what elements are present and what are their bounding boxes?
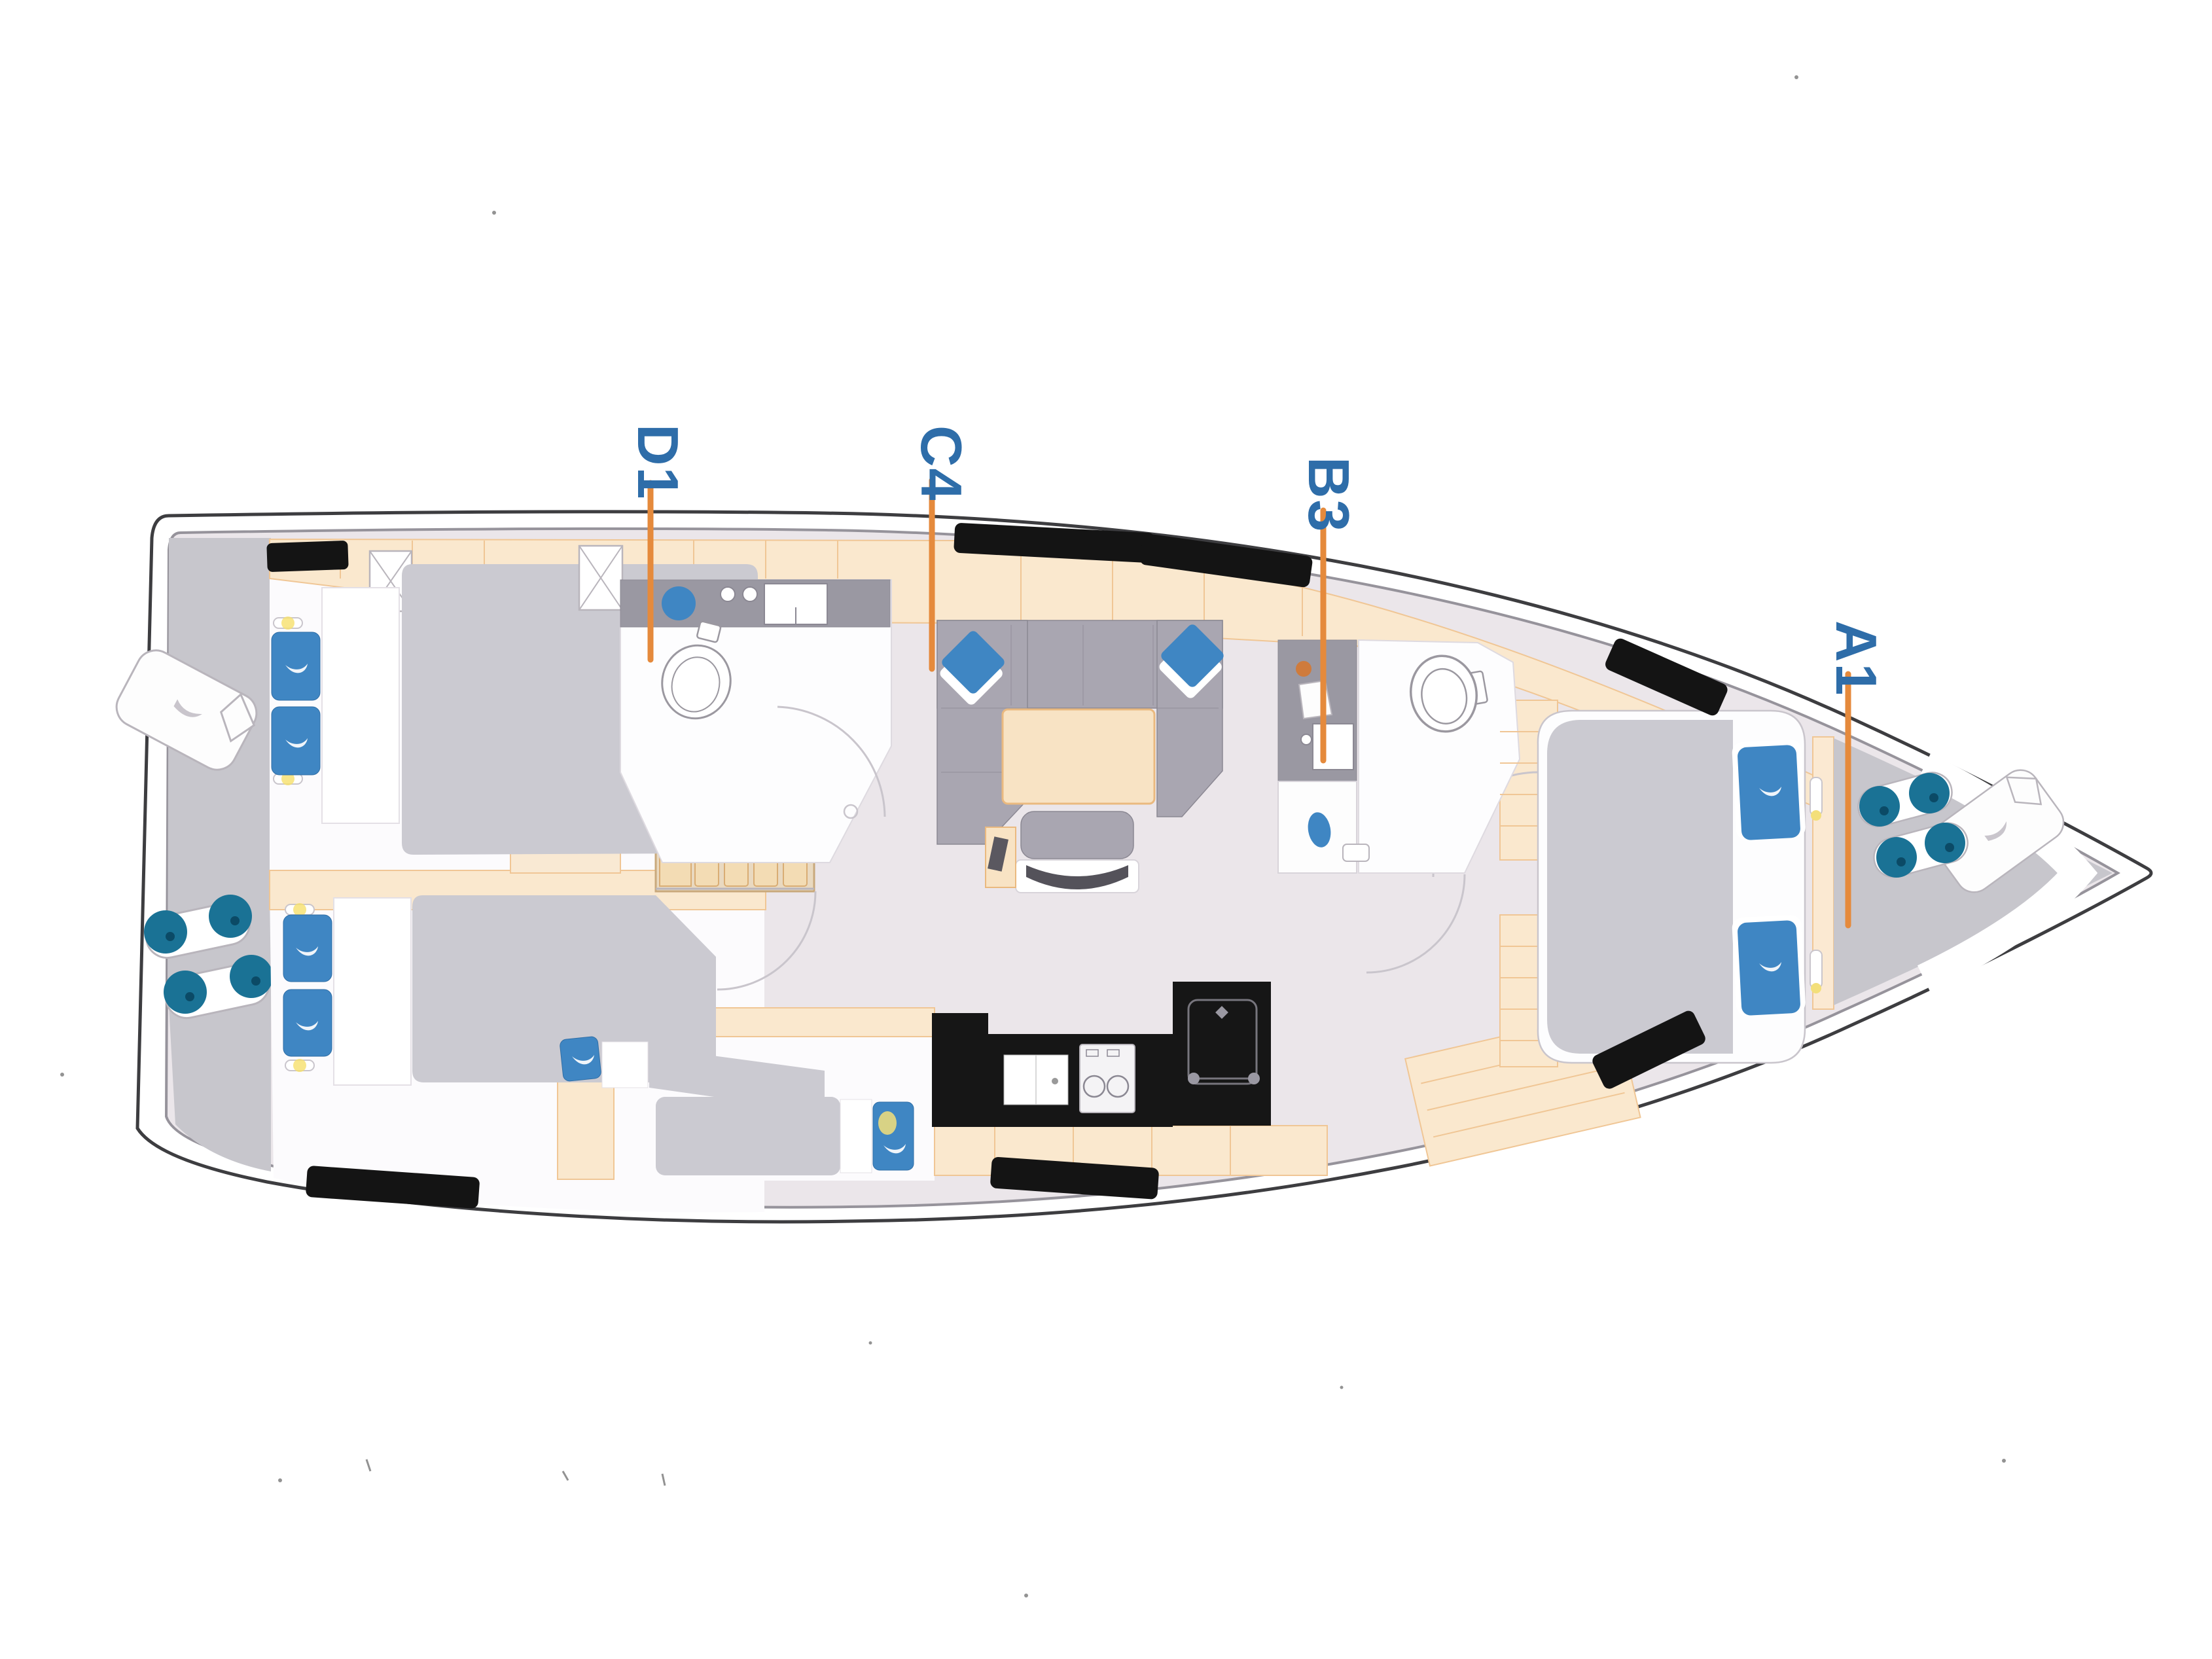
cabin-label-b3: B3 (1296, 457, 1361, 533)
towel-icon (1299, 681, 1332, 719)
stern-deck (110, 538, 274, 1171)
faucet-icon (743, 587, 757, 601)
salon-bench (1021, 812, 1133, 859)
window-slot (266, 541, 348, 572)
salon-table (1003, 709, 1154, 804)
bow-deck (1834, 738, 2113, 1005)
mattress (1547, 720, 1733, 1054)
pillow (1732, 739, 1806, 840)
bed-sheet (334, 898, 411, 1085)
pillow (1732, 914, 1806, 1016)
pillow (283, 990, 332, 1056)
pillow (272, 707, 320, 775)
cabin-label-c4: C4 (909, 425, 974, 502)
mattress (656, 1097, 840, 1175)
faucet-icon (721, 587, 735, 601)
cabin-label-d1: D1 (626, 424, 690, 501)
stern-deck-surface (168, 538, 271, 1171)
pillow (272, 632, 320, 700)
galley-faucet-icon (1052, 1078, 1058, 1084)
shower-drain-icon (1343, 844, 1369, 861)
cabin-label-a1: A1 (1824, 620, 1889, 697)
scanned-deck-plan-page: D1 C4 B3 A1 (0, 0, 2212, 1659)
vanity-counter (620, 580, 890, 627)
faucet-icon (1301, 734, 1311, 745)
bed-sheet (840, 1099, 872, 1173)
bed-sheet (602, 1042, 648, 1088)
soap-icon (1296, 661, 1311, 677)
galley-counter-step (932, 1013, 988, 1037)
pillow (283, 915, 332, 982)
sink-icon (1313, 724, 1353, 770)
reading-light-icon (1810, 950, 1822, 988)
pillow (560, 1036, 601, 1082)
bed-sheet (322, 588, 399, 823)
washbasin-icon (662, 586, 696, 620)
reading-light-icon (1810, 777, 1822, 815)
yacht-deck-plan: D1 C4 B3 A1 (0, 0, 2212, 1659)
pillow (873, 1102, 914, 1170)
forward-cabin (1500, 711, 1822, 1063)
